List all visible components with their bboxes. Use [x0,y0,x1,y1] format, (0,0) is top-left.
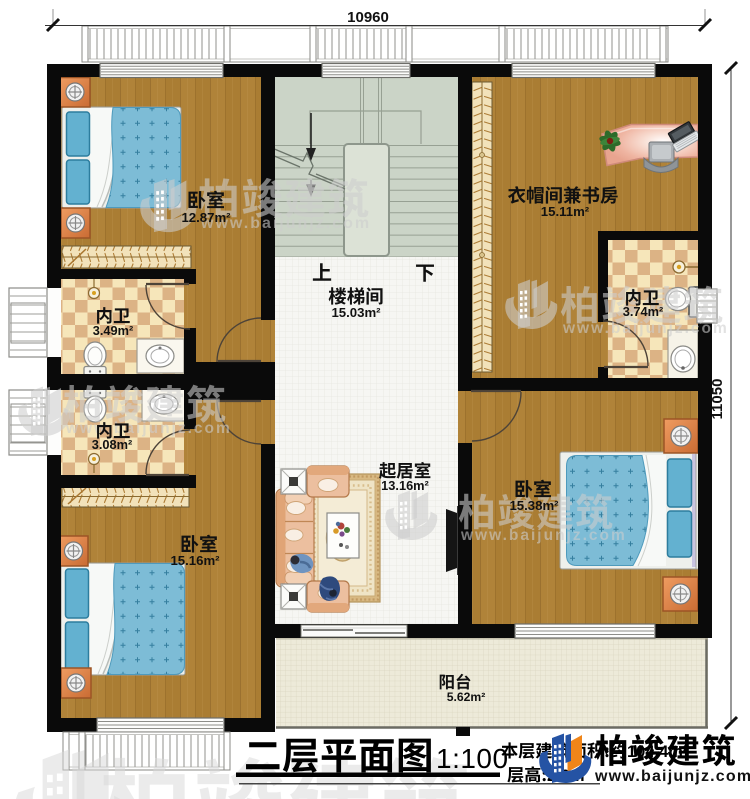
svg-text:12.87m²: 12.87m² [181,210,231,225]
svg-text:3.49m²: 3.49m² [93,323,134,338]
svg-text:15.16m²: 15.16m² [170,553,220,568]
svg-text:5.62m²: 5.62m² [447,690,486,704]
svg-text:15.11m²: 15.11m² [541,204,590,219]
svg-text:www.baijunjz.com: www.baijunjz.com [460,527,627,544]
svg-text:15.38m²: 15.38m² [509,498,559,513]
svg-text:3.74m²: 3.74m² [623,304,664,319]
svg-text:www.baijunjz.com: www.baijunjz.com [65,420,232,437]
svg-text:www.baijunjz.com: www.baijunjz.com [562,320,729,337]
svg-text:www.baijunjz.com: www.baijunjz.com [594,768,750,785]
svg-text:1:100: 1:100 [436,743,509,774]
svg-text:11050: 11050 [709,379,726,420]
svg-text:13.16m²: 13.16m² [381,478,429,493]
svg-text:3.08m²: 3.08m² [92,437,133,452]
svg-text:10960: 10960 [347,9,389,26]
svg-text:15.03m²: 15.03m² [331,305,381,320]
